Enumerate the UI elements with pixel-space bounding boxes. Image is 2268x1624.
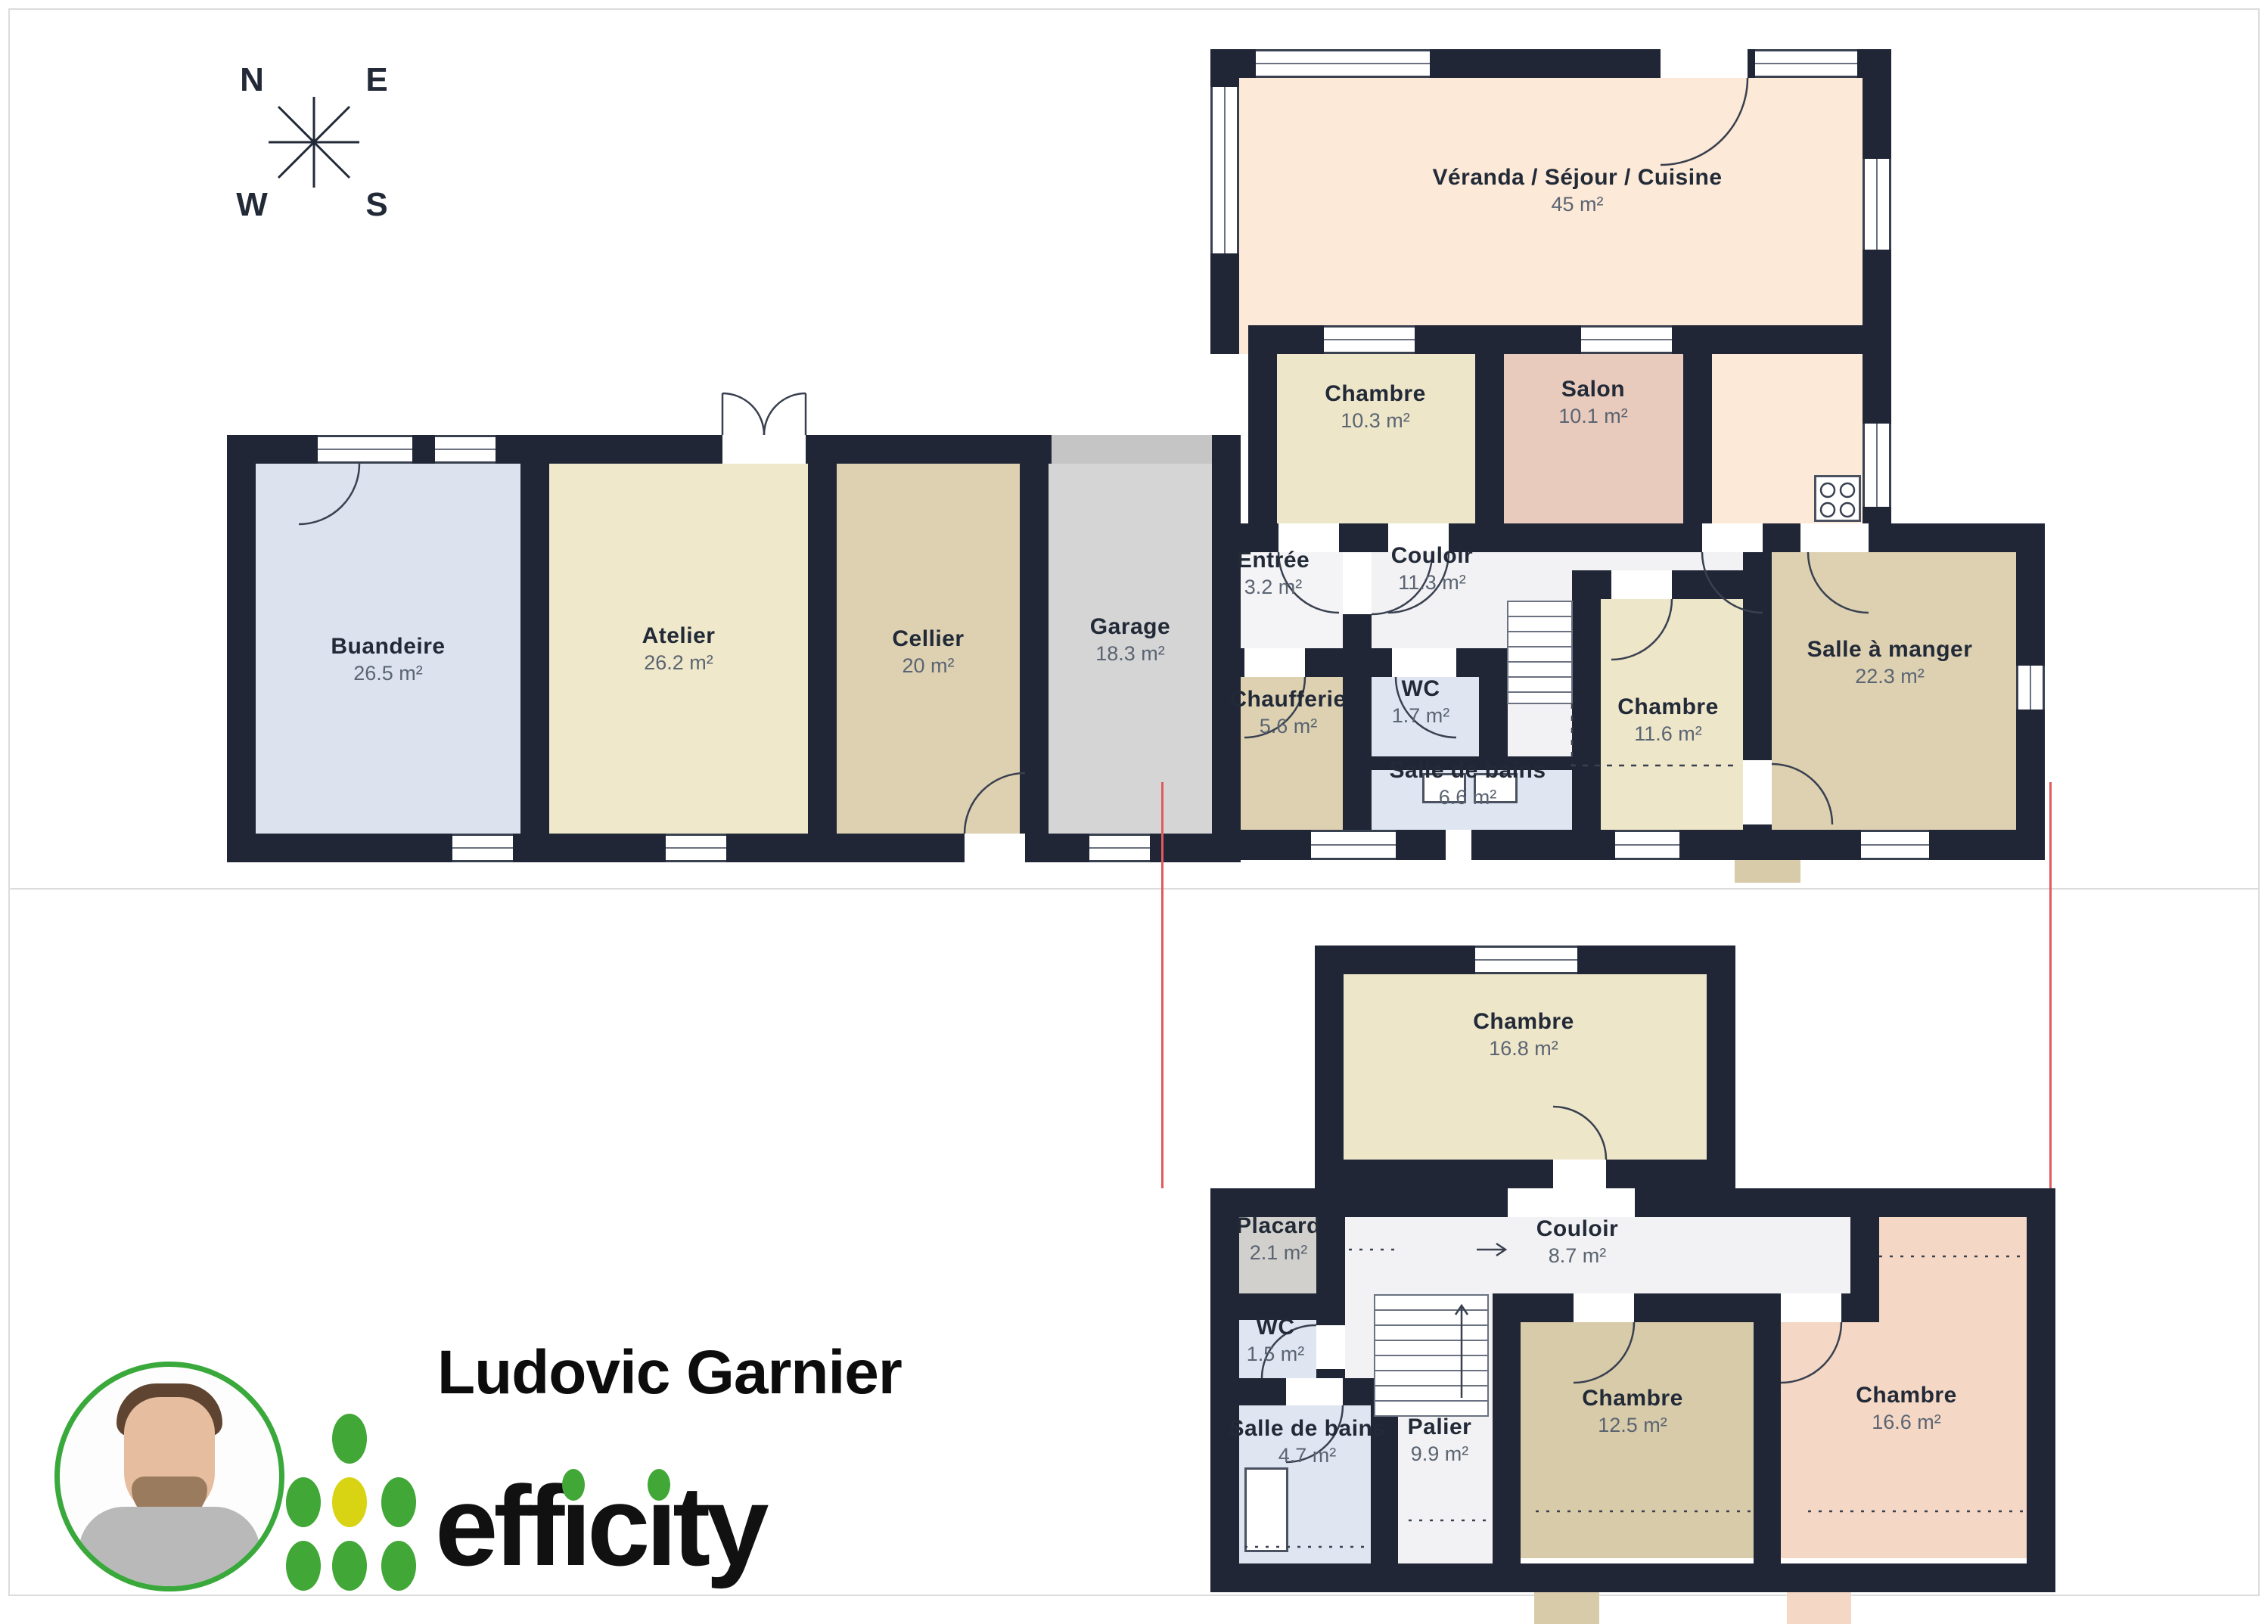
room-label: Cellier20 m² (892, 626, 964, 678)
fixture (1814, 475, 1861, 522)
room-label: Chambre10.3 m² (1325, 381, 1426, 433)
door-opening (1611, 570, 1672, 599)
wall (1248, 354, 1277, 552)
room-label: Salle de bains4.7 m² (1229, 1416, 1385, 1467)
efficity-i-green-dot: ı (645, 1462, 673, 1589)
wall (1315, 1160, 1735, 1188)
room-name: WC (1247, 1315, 1305, 1340)
window (1861, 830, 1929, 860)
room-label: Chambre16.6 m² (1856, 1383, 1957, 1434)
compass-west: W (236, 186, 268, 224)
room-area: 5.6 m² (1230, 715, 1346, 738)
door-opening (1702, 523, 1763, 552)
window (1475, 946, 1577, 974)
room-label: Chambre16.8 m² (1473, 1009, 1574, 1060)
room-area: 6.6 m² (1389, 786, 1546, 809)
room-name: Chaufferie (1230, 687, 1346, 713)
room-stairwell (1508, 570, 1572, 770)
wall (1707, 974, 1735, 1188)
door-opening (1508, 1188, 1635, 1217)
chimney-stub (1534, 1592, 1599, 1624)
compass-north: N (240, 61, 264, 99)
door-opening (1446, 830, 1471, 860)
room-area: 11.6 m² (1617, 722, 1719, 746)
window (1615, 830, 1679, 860)
chimney-stub (1787, 1592, 1851, 1624)
window (1210, 87, 1239, 253)
wall (2027, 1217, 2055, 1592)
projection-line (2049, 782, 2052, 1188)
room-name: Chambre (1325, 381, 1426, 407)
room-name: Salle de bains (1229, 1416, 1385, 1442)
door-opening (1286, 1378, 1343, 1405)
window (452, 834, 513, 862)
efficity-dot (381, 1477, 416, 1527)
wall (1210, 1563, 2055, 1592)
efficity-dot (286, 1477, 321, 1527)
door-opening (1392, 648, 1456, 677)
room-chambre-16-6 (1781, 1322, 2027, 1558)
efficity-dot (332, 1414, 367, 1464)
door-opening (722, 435, 806, 464)
room-name: Couloir (1536, 1216, 1619, 1242)
floors-divider (8, 888, 2260, 890)
compass-star (269, 97, 359, 188)
room-name: Buandeire (331, 634, 445, 660)
room-name: Palier (1408, 1414, 1472, 1440)
room-name: Salon (1558, 377, 1628, 402)
wall (1754, 1322, 1781, 1563)
door-opening (1316, 1325, 1345, 1369)
room-name: Chambre (1582, 1386, 1683, 1411)
room-name: WC (1392, 676, 1450, 702)
room-area: 3.2 m² (1237, 576, 1310, 599)
room-area: 18.3 m² (1090, 642, 1170, 666)
room-label: Palier9.9 m² (1408, 1414, 1472, 1466)
room-name: Couloir (1391, 543, 1474, 569)
room-name: Placard (1236, 1213, 1321, 1239)
door-opening (1343, 552, 1372, 614)
room-label: WC1.7 m² (1392, 676, 1450, 728)
window (666, 834, 726, 862)
room-label: Salle à manger22.3 m² (1807, 637, 1973, 688)
window (1311, 830, 1396, 860)
door-opening (1052, 435, 1212, 464)
door-opening (965, 834, 1025, 862)
projection-line (1161, 782, 1164, 1188)
wall (227, 834, 1241, 862)
wall (1343, 648, 1372, 830)
room-name: Chambre (1856, 1383, 1957, 1408)
room-name: Cellier (892, 626, 964, 652)
room-cuisine-strip (1712, 354, 1863, 552)
room-area: 26.2 m² (642, 651, 716, 675)
window (318, 435, 412, 464)
room-area: 22.3 m² (1807, 665, 1973, 688)
room-label: Placard2.1 m² (1236, 1213, 1321, 1265)
compass-east: E (365, 61, 387, 99)
room-label: Chaufferie5.6 m² (1230, 687, 1346, 738)
room-chambre-10-3 (1277, 354, 1475, 523)
window (1755, 49, 1857, 78)
door-opening (1553, 1160, 1606, 1188)
wall (1020, 464, 1049, 834)
door-opening (1743, 760, 1772, 824)
room-area: 45 m² (1432, 193, 1722, 216)
room-name: Entrée (1237, 548, 1310, 573)
room-label: Entrée3.2 m² (1237, 548, 1310, 599)
room-area: 20 m² (892, 654, 964, 678)
room-label: Buandeire26.5 m² (331, 634, 445, 685)
window (1089, 834, 1150, 862)
window (1863, 159, 1891, 250)
room-salle-a-manger (1772, 552, 2016, 830)
room-area: 10.3 m² (1325, 409, 1426, 433)
room-name: Chambre (1617, 694, 1719, 720)
wall (1493, 1293, 1521, 1563)
room-area: 1.5 m² (1247, 1343, 1305, 1366)
room-name: Chambre (1473, 1009, 1574, 1035)
wall (1475, 354, 1504, 552)
efficity-dot (332, 1477, 367, 1527)
room-name: Atelier (642, 623, 716, 649)
wall (1315, 974, 1344, 1188)
window (1324, 325, 1415, 354)
agent-photo (54, 1362, 284, 1591)
window (435, 435, 496, 464)
room-name: Salle à manger (1807, 637, 1973, 663)
room-area: 12.5 m² (1582, 1414, 1683, 1437)
efficity-i-green-dot: ı (560, 1462, 587, 1589)
room-label: Salon10.1 m² (1558, 377, 1628, 428)
wall (1210, 1217, 1239, 1592)
compass-south: S (365, 186, 387, 224)
window (2016, 666, 2045, 710)
room-name: Véranda / Séjour / Cuisine (1432, 165, 1722, 191)
room-area: 8.7 m² (1536, 1244, 1619, 1268)
wall (1572, 570, 1601, 830)
fixture (1244, 1467, 1288, 1552)
window (1256, 49, 1430, 78)
door-opening (1661, 49, 1748, 78)
efficity-dot (332, 1541, 367, 1591)
room-area: 9.9 m² (1408, 1442, 1472, 1466)
window (1863, 424, 1891, 507)
room-label: Couloir8.7 m² (1536, 1216, 1619, 1268)
efficity-dot (381, 1541, 416, 1591)
room-area: 4.7 m² (1229, 1444, 1385, 1467)
door-opening (1800, 523, 1869, 552)
door-opening (1574, 1293, 1634, 1322)
efficity-logo-text: effıcıty (435, 1469, 765, 1582)
room-area: 11.3 m² (1391, 571, 1474, 595)
wall (1683, 354, 1712, 552)
wall (227, 435, 256, 862)
room-area: 10.1 m² (1558, 405, 1628, 428)
avatar-shoulders (79, 1507, 260, 1591)
chimney-stub (1735, 860, 1800, 883)
room-couloir (1398, 1217, 1850, 1293)
room-label: Atelier26.2 m² (642, 623, 716, 675)
efficity-dot (286, 1541, 321, 1591)
room-chambre-16-8 (1344, 974, 1707, 1160)
room-chambre-16-6-upper (1879, 1217, 2027, 1322)
room-area: 2.1 m² (1236, 1241, 1321, 1265)
room-area: 1.7 m² (1392, 704, 1450, 728)
agent-name: Ludovic Garnier (437, 1337, 902, 1408)
room-label: Véranda / Séjour / Cuisine45 m² (1432, 165, 1722, 216)
room-label: WC1.5 m² (1247, 1315, 1305, 1366)
door-opening (1244, 648, 1305, 677)
room-label: Couloir11.3 m² (1391, 543, 1474, 595)
room-area: 16.6 m² (1856, 1411, 1957, 1434)
room-name: Garage (1090, 614, 1170, 640)
room-name: Salle de bains (1389, 758, 1546, 784)
window (1581, 325, 1672, 354)
room-label: Garage18.3 m² (1090, 614, 1170, 666)
room-area: 16.8 m² (1473, 1037, 1574, 1060)
room-chambre-12-5 (1521, 1322, 1754, 1558)
room-area: 26.5 m² (331, 662, 445, 685)
wall (808, 464, 837, 834)
door-opening (1781, 1293, 1841, 1322)
room-label: Chambre12.5 m² (1582, 1386, 1683, 1437)
room-label: Chambre11.6 m² (1617, 694, 1719, 746)
room-label: Salle de bains6.6 m² (1389, 758, 1546, 809)
wall (520, 464, 549, 834)
wall (1850, 1217, 1879, 1322)
